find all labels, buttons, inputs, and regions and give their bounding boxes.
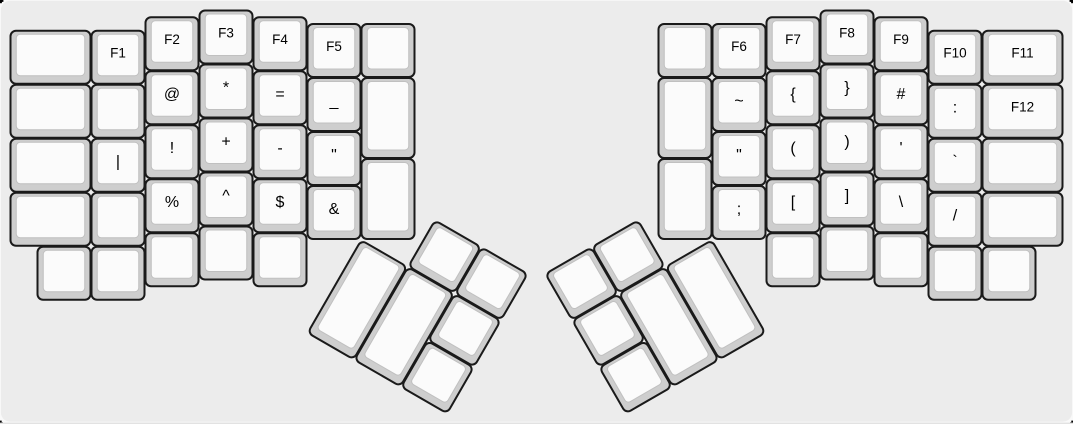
svg-text:": " [331, 147, 337, 164]
svg-text:': ' [899, 140, 902, 157]
svg-text:|: | [116, 154, 120, 171]
svg-text:F12: F12 [1011, 100, 1034, 115]
svg-text:F11: F11 [1011, 46, 1033, 61]
svg-text:F1: F1 [110, 46, 126, 61]
svg-text:F8: F8 [839, 25, 855, 40]
svg-text:=: = [275, 86, 284, 103]
svg-text:[: [ [791, 194, 796, 211]
svg-text:$: $ [276, 194, 285, 211]
svg-text:/: / [953, 208, 958, 225]
svg-text:_: _ [329, 93, 340, 110]
svg-text:}: } [844, 79, 850, 96]
svg-text:{: { [790, 86, 796, 103]
svg-text:^: ^ [222, 187, 230, 204]
svg-text:F3: F3 [218, 25, 234, 40]
svg-text::: : [953, 100, 957, 117]
svg-text:!: ! [170, 140, 174, 157]
svg-text:`: ` [952, 154, 957, 171]
svg-text:-: - [277, 140, 282, 157]
svg-text:F9: F9 [893, 32, 909, 47]
svg-text:F2: F2 [164, 32, 180, 47]
svg-text:(: ( [790, 140, 796, 157]
svg-text:@: @ [164, 86, 180, 103]
svg-text:): ) [844, 133, 849, 150]
svg-text:&: & [329, 201, 340, 218]
svg-text:\: \ [899, 194, 904, 211]
svg-text:;: ; [737, 201, 741, 218]
svg-text:%: % [165, 194, 179, 211]
svg-text:]: ] [845, 187, 849, 204]
svg-text:F5: F5 [326, 39, 342, 54]
svg-text:F7: F7 [785, 32, 801, 47]
svg-text:": " [736, 147, 742, 164]
svg-text:F6: F6 [731, 39, 747, 54]
svg-text:+: + [221, 133, 230, 150]
svg-text:*: * [223, 79, 229, 96]
svg-text:~: ~ [734, 93, 743, 110]
svg-text:F10: F10 [943, 46, 966, 61]
svg-text:#: # [897, 86, 906, 103]
svg-text:F4: F4 [272, 32, 288, 47]
